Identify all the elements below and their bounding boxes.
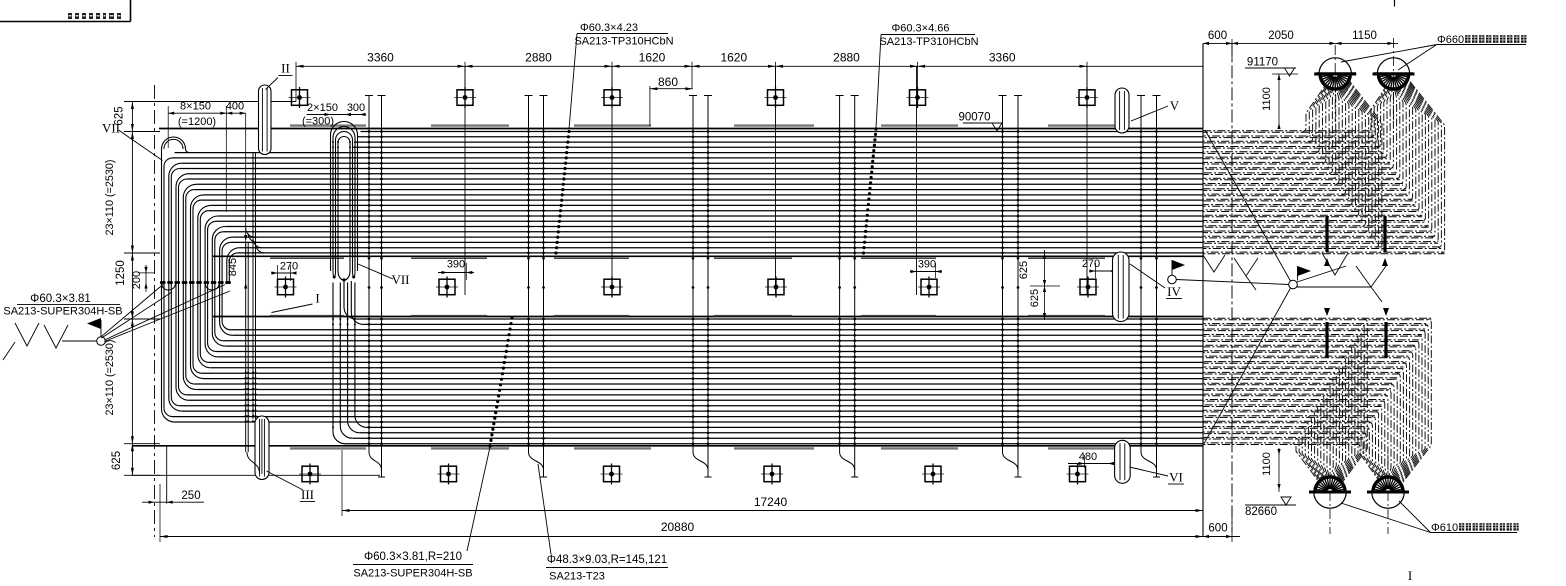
svg-text:600: 600 bbox=[1208, 30, 1227, 42]
svg-text:I: I bbox=[1408, 568, 1412, 583]
svg-text:20880: 20880 bbox=[661, 520, 695, 534]
svg-text:1150: 1150 bbox=[1352, 30, 1377, 42]
svg-text:390: 390 bbox=[447, 259, 465, 271]
svg-text:SA213-SUPER304H-SB: SA213-SUPER304H-SB bbox=[353, 568, 472, 580]
svg-text:I: I bbox=[315, 291, 319, 306]
svg-text:845: 845 bbox=[227, 258, 239, 276]
svg-text:1100: 1100 bbox=[1261, 452, 1273, 476]
svg-text:SA213-TP310HCbN: SA213-TP310HCbN bbox=[879, 36, 978, 48]
svg-text:270: 270 bbox=[1082, 258, 1100, 270]
svg-text:2880: 2880 bbox=[525, 51, 552, 65]
svg-text:390: 390 bbox=[918, 259, 936, 271]
svg-text:VII: VII bbox=[102, 121, 120, 136]
svg-text:1620: 1620 bbox=[639, 51, 666, 65]
svg-text:2050: 2050 bbox=[1268, 30, 1294, 42]
svg-text:8×150: 8×150 bbox=[180, 101, 211, 113]
svg-text:23×110 (=2530): 23×110 (=2530) bbox=[104, 339, 116, 415]
svg-text:400: 400 bbox=[226, 101, 244, 113]
svg-text:VI: VI bbox=[1169, 470, 1183, 485]
svg-text:200: 200 bbox=[131, 271, 143, 289]
svg-text:Φ60.3×4.23: Φ60.3×4.23 bbox=[580, 22, 638, 34]
svg-text:SA213-TP310HCbN: SA213-TP310HCbN bbox=[574, 36, 673, 48]
svg-text:SA213-SUPER304H-SB: SA213-SUPER304H-SB bbox=[3, 306, 122, 318]
svg-text:SA213-T23: SA213-T23 bbox=[549, 571, 605, 583]
svg-text:Φ48.3×9.03,R=145,121: Φ48.3×9.03,R=145,121 bbox=[547, 554, 667, 566]
svg-text:Φ60.3×3.81,R=210: Φ60.3×3.81,R=210 bbox=[364, 551, 462, 563]
svg-text:625: 625 bbox=[1029, 289, 1041, 307]
svg-text:625: 625 bbox=[1018, 261, 1030, 279]
svg-text:250: 250 bbox=[181, 490, 200, 502]
svg-text:860: 860 bbox=[658, 75, 678, 89]
svg-text:(=1200): (=1200) bbox=[178, 116, 216, 128]
svg-text:625: 625 bbox=[111, 451, 123, 470]
svg-text:V: V bbox=[1170, 98, 1180, 113]
svg-text:270: 270 bbox=[280, 261, 298, 273]
svg-text:III: III bbox=[301, 487, 314, 502]
svg-text:1100: 1100 bbox=[1261, 87, 1273, 111]
svg-text:82660: 82660 bbox=[1245, 506, 1277, 518]
svg-text:1620: 1620 bbox=[720, 51, 747, 65]
svg-text:2×150: 2×150 bbox=[307, 102, 338, 114]
svg-text:Φ60.3×3.81: Φ60.3×3.81 bbox=[30, 293, 91, 305]
svg-text:300: 300 bbox=[347, 102, 365, 114]
svg-text:Φ60.3×4.66: Φ60.3×4.66 bbox=[891, 23, 949, 35]
svg-text:3360: 3360 bbox=[367, 51, 394, 65]
svg-text:480: 480 bbox=[1079, 451, 1097, 463]
svg-text:VII: VII bbox=[391, 272, 409, 287]
svg-text:90070: 90070 bbox=[959, 112, 991, 124]
svg-text:1250: 1250 bbox=[115, 260, 127, 286]
svg-text:17240: 17240 bbox=[754, 495, 788, 509]
svg-text:23×110 (=2530): 23×110 (=2530) bbox=[104, 159, 116, 235]
svg-text:91170: 91170 bbox=[1247, 57, 1278, 69]
svg-text:II: II bbox=[281, 61, 290, 76]
svg-text:3360: 3360 bbox=[989, 51, 1016, 65]
svg-text:600: 600 bbox=[1208, 523, 1227, 535]
svg-text:(=300): (=300) bbox=[302, 116, 334, 128]
svg-text:2880: 2880 bbox=[833, 51, 860, 65]
svg-text:IV: IV bbox=[1167, 284, 1181, 299]
